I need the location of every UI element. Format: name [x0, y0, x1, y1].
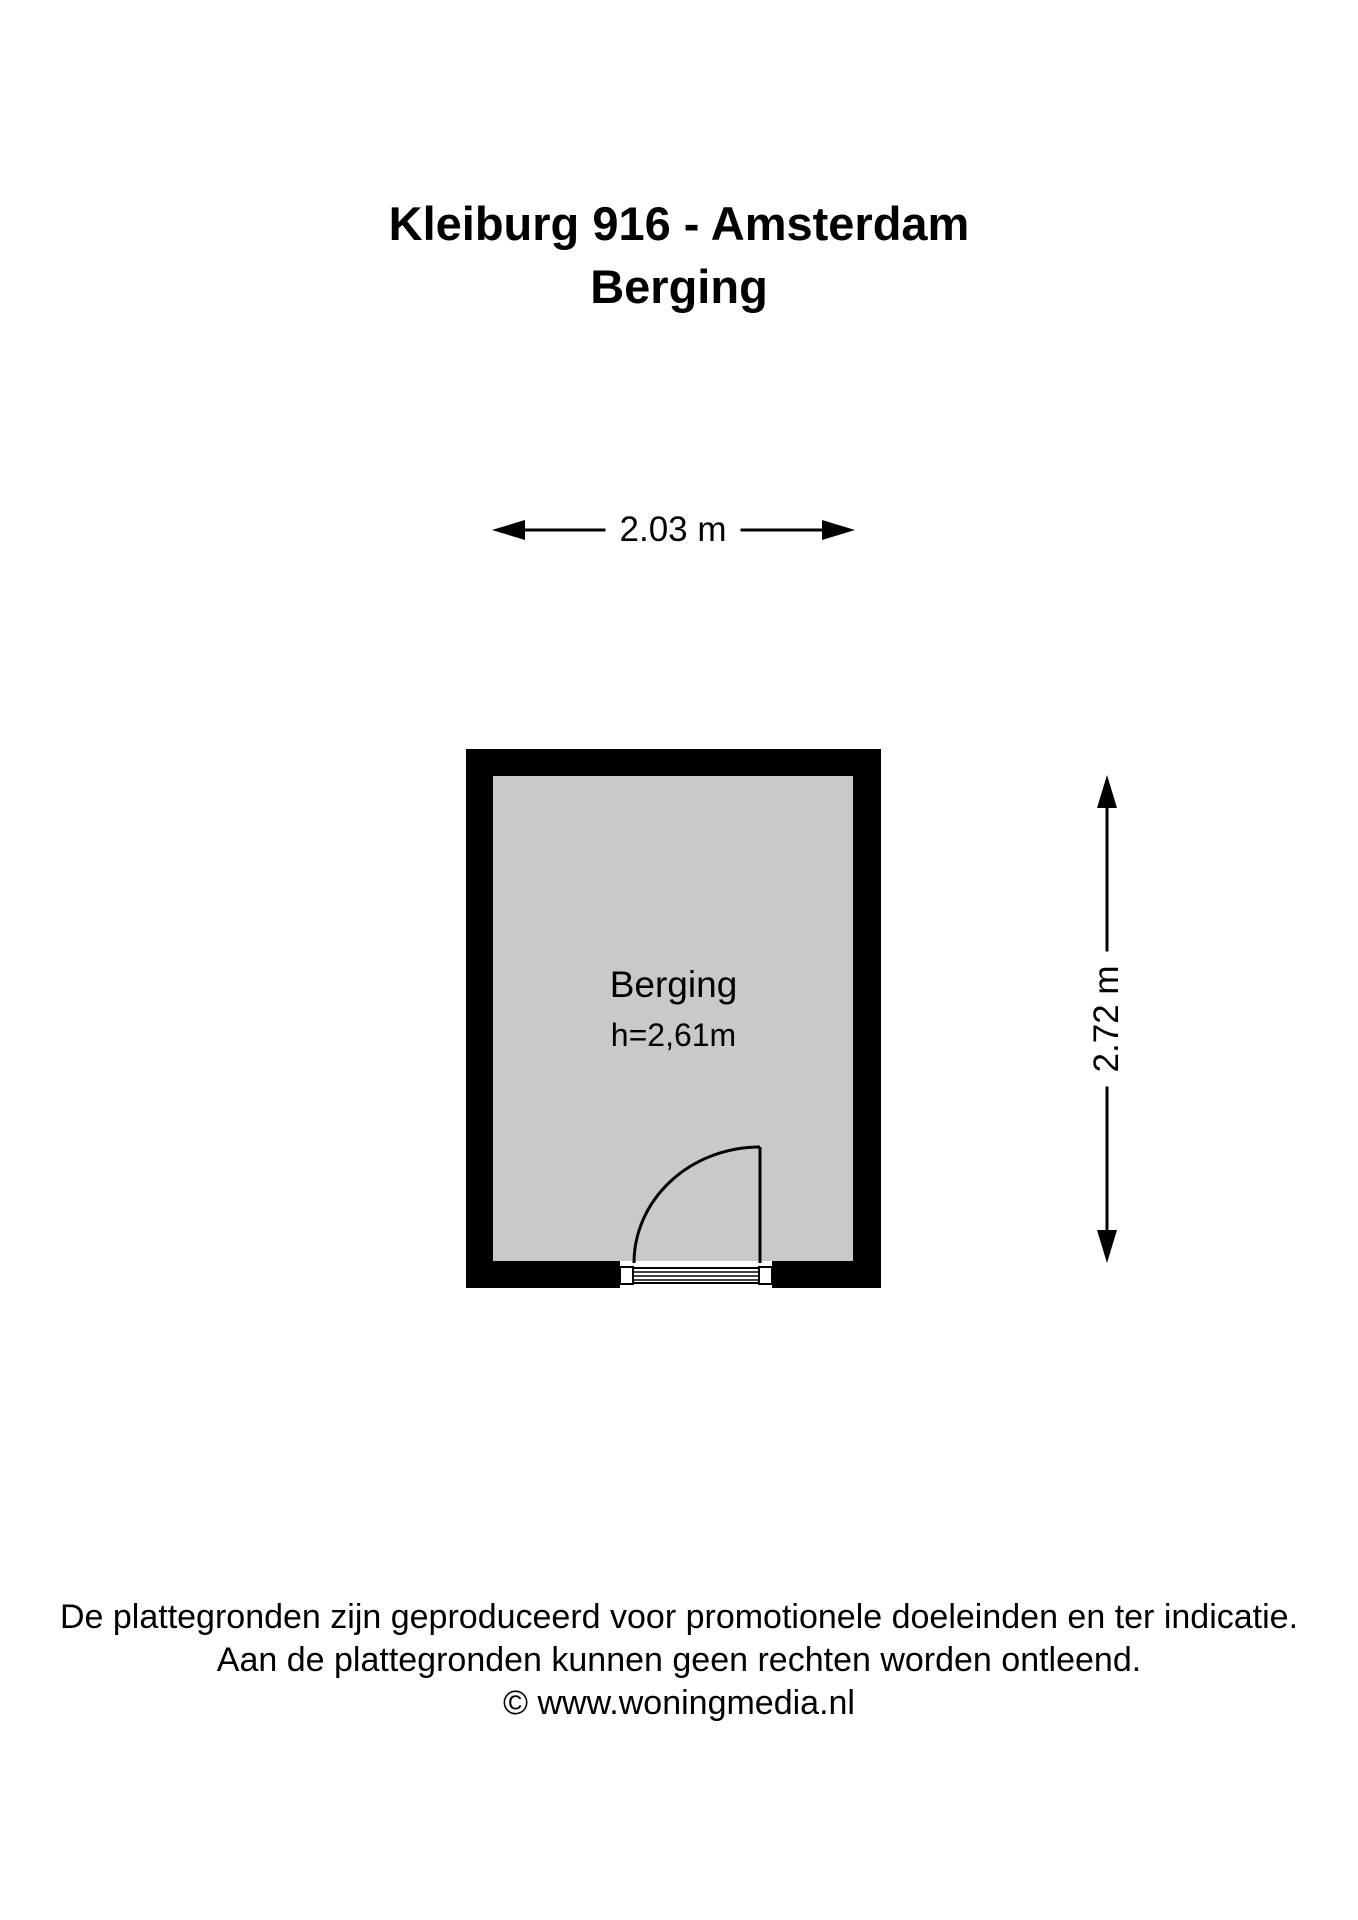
room-name-label: Berging	[466, 966, 881, 1003]
arrowhead-up-icon	[1097, 775, 1117, 808]
height-dimension-label: 2.72 m	[1087, 952, 1127, 1087]
door-opening	[620, 1261, 772, 1288]
room-ceiling-height-label: h=2,61m	[466, 1019, 881, 1051]
floorplan-page: Kleiburg 916 - Amsterdam Berging	[0, 0, 1358, 1920]
title-line-address: Kleiburg 916 - Amsterdam	[0, 192, 1358, 255]
width-dimension-label: 2.03 m	[606, 510, 741, 550]
disclaimer-line-2: Aan de plattegronden kunnen geen rechten…	[0, 1639, 1358, 1682]
arrowhead-right-icon	[822, 520, 855, 540]
copyright-line: © www.woningmedia.nl	[0, 1682, 1358, 1725]
arrowhead-down-icon	[1097, 1230, 1117, 1263]
arrowhead-left-icon	[492, 520, 525, 540]
disclaimer: De plattegronden zijn geproduceerd voor …	[0, 1596, 1358, 1725]
plan-title: Kleiburg 916 - Amsterdam Berging	[0, 192, 1358, 318]
title-line-room: Berging	[0, 255, 1358, 318]
disclaimer-line-1: De plattegronden zijn geproduceerd voor …	[0, 1596, 1358, 1639]
